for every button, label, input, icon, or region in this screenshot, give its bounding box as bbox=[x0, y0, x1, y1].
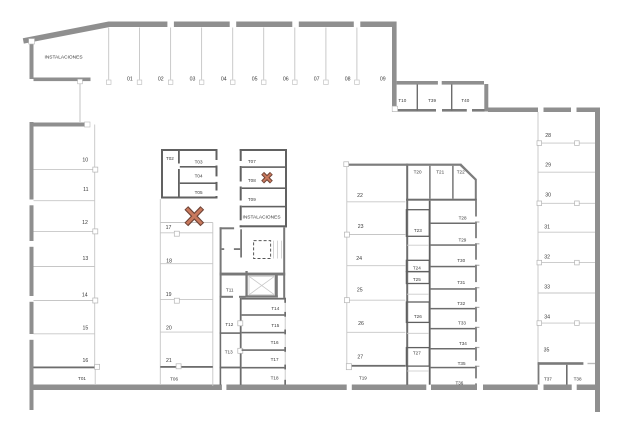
svg-text:T06: T06 bbox=[170, 377, 178, 382]
svg-text:T37: T37 bbox=[544, 377, 552, 382]
svg-text:T26: T26 bbox=[414, 314, 422, 319]
svg-text:T03: T03 bbox=[195, 160, 203, 165]
svg-text:29: 29 bbox=[545, 162, 551, 168]
svg-text:24: 24 bbox=[356, 256, 362, 262]
svg-text:05: 05 bbox=[252, 76, 258, 82]
svg-text:33: 33 bbox=[544, 285, 550, 291]
svg-text:T27: T27 bbox=[413, 350, 421, 355]
svg-text:15: 15 bbox=[83, 326, 89, 332]
svg-text:32: 32 bbox=[544, 254, 550, 260]
svg-text:25: 25 bbox=[357, 288, 363, 294]
svg-text:T13: T13 bbox=[225, 350, 233, 355]
svg-text:T16: T16 bbox=[271, 340, 279, 345]
svg-text:T39: T39 bbox=[428, 98, 436, 103]
svg-text:18: 18 bbox=[166, 258, 172, 264]
svg-text:04: 04 bbox=[221, 76, 227, 82]
svg-text:03: 03 bbox=[190, 76, 196, 82]
svg-text:T30: T30 bbox=[457, 258, 465, 263]
svg-text:T14: T14 bbox=[271, 306, 279, 311]
svg-text:T29: T29 bbox=[458, 237, 466, 242]
svg-text:T09: T09 bbox=[248, 197, 256, 202]
svg-text:22: 22 bbox=[357, 193, 363, 199]
svg-text:T32: T32 bbox=[457, 301, 465, 306]
svg-text:T40: T40 bbox=[461, 98, 469, 103]
svg-text:01: 01 bbox=[127, 76, 133, 82]
svg-text:16: 16 bbox=[83, 358, 89, 364]
svg-text:28: 28 bbox=[545, 133, 551, 139]
svg-text:T15: T15 bbox=[271, 323, 279, 328]
svg-text:T11: T11 bbox=[226, 288, 234, 293]
svg-text:08: 08 bbox=[345, 76, 351, 82]
svg-text:21: 21 bbox=[166, 358, 172, 364]
svg-text:19: 19 bbox=[166, 292, 172, 298]
svg-text:T07: T07 bbox=[248, 159, 256, 164]
svg-text:T02: T02 bbox=[166, 156, 174, 161]
svg-text:T28: T28 bbox=[459, 215, 467, 220]
svg-text:T23: T23 bbox=[414, 228, 422, 233]
svg-text:12: 12 bbox=[82, 220, 88, 226]
svg-text:T10: T10 bbox=[398, 98, 406, 103]
svg-text:30: 30 bbox=[545, 193, 551, 199]
svg-text:02: 02 bbox=[158, 76, 164, 82]
svg-text:10: 10 bbox=[82, 157, 88, 163]
svg-text:T01: T01 bbox=[78, 376, 86, 381]
svg-text:T34: T34 bbox=[459, 341, 467, 346]
svg-text:INSTALACIONES: INSTALACIONES bbox=[44, 55, 82, 61]
svg-text:17: 17 bbox=[166, 225, 172, 231]
svg-text:T04: T04 bbox=[195, 174, 203, 179]
svg-text:T35: T35 bbox=[458, 361, 466, 366]
svg-text:T24: T24 bbox=[413, 266, 421, 271]
svg-text:35: 35 bbox=[544, 348, 550, 354]
svg-text:T38: T38 bbox=[574, 377, 582, 382]
svg-text:13: 13 bbox=[83, 256, 89, 262]
svg-text:26: 26 bbox=[358, 321, 364, 327]
svg-text:T25: T25 bbox=[413, 277, 421, 282]
svg-text:T36: T36 bbox=[455, 381, 463, 386]
svg-text:T31: T31 bbox=[457, 280, 465, 285]
svg-text:T33: T33 bbox=[458, 320, 466, 325]
svg-text:INSTALACIONES: INSTALACIONES bbox=[242, 215, 280, 221]
svg-text:20: 20 bbox=[166, 326, 172, 332]
svg-text:31: 31 bbox=[544, 225, 550, 231]
svg-text:T19: T19 bbox=[359, 376, 367, 381]
svg-text:T05: T05 bbox=[195, 190, 203, 195]
svg-text:06: 06 bbox=[283, 76, 289, 82]
svg-text:34: 34 bbox=[544, 314, 550, 320]
svg-text:11: 11 bbox=[83, 187, 88, 193]
svg-text:14: 14 bbox=[82, 293, 88, 299]
svg-text:T20: T20 bbox=[414, 170, 422, 175]
svg-text:T21: T21 bbox=[436, 170, 444, 175]
svg-text:23: 23 bbox=[358, 224, 364, 230]
svg-text:T17: T17 bbox=[271, 357, 279, 362]
svg-text:27: 27 bbox=[357, 355, 363, 361]
svg-text:T08: T08 bbox=[248, 178, 256, 183]
svg-text:T12: T12 bbox=[225, 322, 233, 327]
svg-text:T22: T22 bbox=[457, 170, 465, 175]
svg-text:09: 09 bbox=[380, 76, 386, 82]
svg-text:07: 07 bbox=[314, 76, 320, 82]
svg-text:T18: T18 bbox=[271, 376, 279, 381]
